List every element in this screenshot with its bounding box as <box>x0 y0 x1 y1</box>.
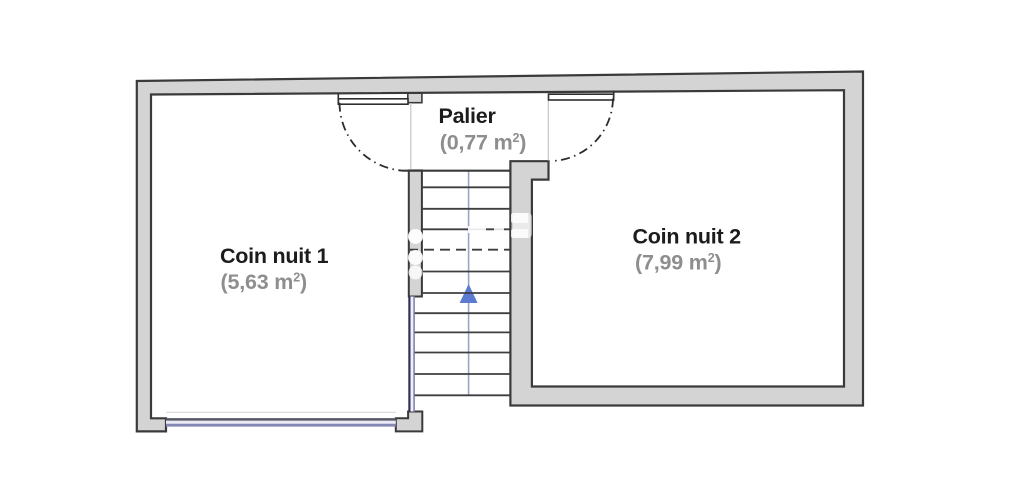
svg-text:Coin nuit 2: Coin nuit 2 <box>633 224 742 248</box>
svg-text:Coin nuit 1: Coin nuit 1 <box>220 244 329 268</box>
svg-text:Palier: Palier <box>439 104 497 128</box>
